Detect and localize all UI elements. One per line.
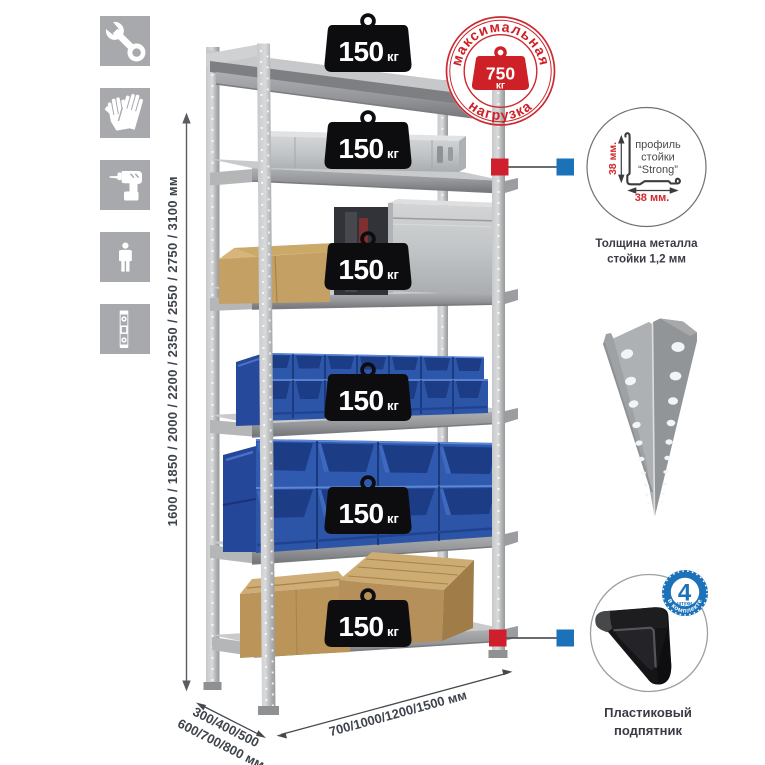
svg-text:профиль: профиль (635, 139, 681, 151)
svg-text:1600 / 1850 / 2000 / 2200 / 23: 1600 / 1850 / 2000 / 2200 / 2350 / 2550 … (165, 177, 180, 527)
svg-text:Пластиковый: Пластиковый (604, 705, 692, 720)
svg-text:Толщина металла: Толщина металла (595, 237, 698, 250)
svg-text:подпятник: подпятник (614, 723, 683, 738)
svg-text:38 мм.: 38 мм. (607, 142, 619, 175)
svg-text:38 мм.: 38 мм. (635, 192, 670, 204)
svg-text:штуки: штуки (677, 601, 692, 607)
svg-text:стойки 1,2 мм: стойки 1,2 мм (607, 253, 686, 266)
svg-text:кг: кг (496, 81, 505, 92)
svg-text:стойки: стойки (641, 152, 675, 164)
svg-text:“Strong”: “Strong” (638, 164, 678, 176)
